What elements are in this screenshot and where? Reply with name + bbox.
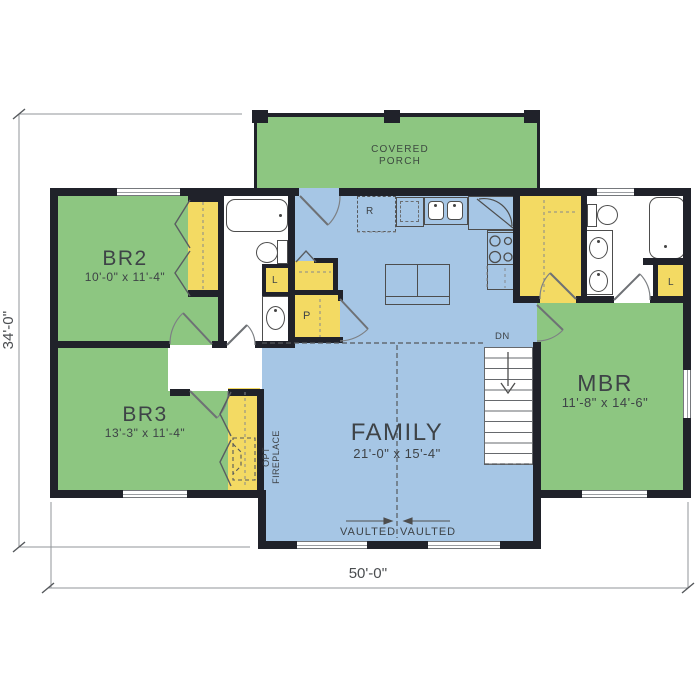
pantry-label: P: [303, 310, 311, 322]
wall: [262, 292, 290, 296]
window: [297, 541, 367, 549]
window: [123, 490, 187, 498]
window: [597, 188, 634, 196]
opt-fireplace-line2: FIREPLACE: [271, 417, 281, 497]
wall: [188, 196, 218, 202]
floor-plan: COVERED PORCH BR2 10'-0" x 11'-4" BR3 13…: [0, 0, 700, 700]
mbr-label: MBR 11'-8" x 14'-6": [543, 370, 667, 411]
wall: [683, 188, 691, 498]
window: [428, 541, 500, 549]
hallway-floor: [168, 345, 262, 391]
br3-label: BR3 13'-3" x 11'-4": [83, 403, 207, 441]
bathtub: [649, 197, 685, 259]
wall: [513, 296, 540, 303]
wall: [338, 295, 343, 301]
window: [683, 370, 691, 418]
room-dims: 11'-8" x 14'-6": [543, 396, 667, 411]
br2-label: BR2 10'-0" x 11'-4": [63, 247, 187, 285]
master-closet: [517, 192, 583, 303]
refrigerator-outline: [357, 196, 396, 232]
br3-closet: [228, 388, 260, 490]
wall: [262, 264, 290, 268]
wall: [653, 265, 658, 303]
vaulted-label-right: VAULTED: [400, 526, 456, 538]
refrigerator-label: R: [366, 206, 374, 217]
wall: [643, 258, 691, 265]
opt-fireplace-line1: OPT: [261, 417, 271, 497]
hall-linen-label: L: [272, 275, 278, 286]
corner-counter: [468, 196, 516, 230]
wall: [513, 196, 520, 303]
wall: [262, 266, 266, 294]
wall: [581, 196, 587, 303]
toilet-tank: [587, 204, 597, 227]
mbr-hall-floor: [517, 303, 537, 347]
pantry-closet: [293, 295, 340, 341]
sink-faucet: [274, 309, 277, 312]
overall-height-dimension: 34'-0'': [0, 295, 20, 365]
wall: [255, 341, 295, 348]
room-dims: 13'-3" x 11'-4": [83, 427, 207, 441]
porch-label-line1: COVERED: [350, 144, 450, 156]
wall: [290, 337, 343, 343]
porch-post: [384, 110, 400, 123]
wall: [170, 389, 190, 396]
room-name: FAMILY: [325, 419, 469, 447]
wall: [288, 196, 295, 345]
wall: [533, 490, 541, 549]
porch-post: [524, 110, 540, 123]
room-dims: 21'-0" x 15'-4": [325, 447, 469, 462]
porch-label: COVERED PORCH: [350, 144, 450, 167]
wall: [533, 342, 541, 490]
tub-faucet: [279, 214, 282, 217]
coat-closet: [295, 261, 335, 291]
room-name: BR3: [83, 403, 207, 427]
stairs-dn-label: DN: [495, 331, 510, 342]
porch-edge: [537, 113, 540, 190]
dishwasher-inner: [400, 201, 419, 222]
wall: [290, 290, 343, 295]
sink-faucet: [453, 204, 456, 207]
master-linen-label: L: [668, 277, 674, 288]
br2-closet: [188, 196, 218, 297]
room-name: MBR: [543, 370, 667, 396]
range: [487, 232, 516, 265]
sink-faucet: [434, 204, 437, 207]
toilet-bowl: [597, 205, 618, 225]
wall: [576, 296, 614, 303]
island-divider: [417, 265, 418, 296]
porch-edge: [254, 113, 257, 190]
window: [582, 490, 647, 498]
toilet-tank: [277, 240, 288, 264]
toilet-bowl: [256, 242, 278, 263]
tub-faucet: [664, 245, 667, 248]
room-dims: 10'-0" x 11'-4": [63, 271, 187, 285]
staircase: [484, 347, 533, 465]
wall: [218, 196, 224, 348]
porch-label-line2: PORCH: [350, 156, 450, 168]
family-label: FAMILY 21'-0" x 15'-4": [325, 419, 469, 462]
wall: [212, 341, 227, 348]
room-name: BR2: [63, 247, 187, 271]
porch-door-opening: [299, 188, 339, 196]
wall: [188, 290, 218, 297]
opt-fireplace-label: OPT FIREPLACE: [261, 417, 283, 497]
wall: [50, 341, 170, 348]
overall-width-dimension: 50'-0'': [318, 565, 418, 582]
porch-post: [252, 110, 268, 123]
window: [117, 188, 180, 196]
island-ledge: [385, 296, 450, 305]
sink-faucet: [597, 273, 600, 276]
wall: [333, 263, 338, 290]
sink-faucet: [597, 240, 600, 243]
vaulted-label-left: VAULTED: [340, 526, 396, 538]
